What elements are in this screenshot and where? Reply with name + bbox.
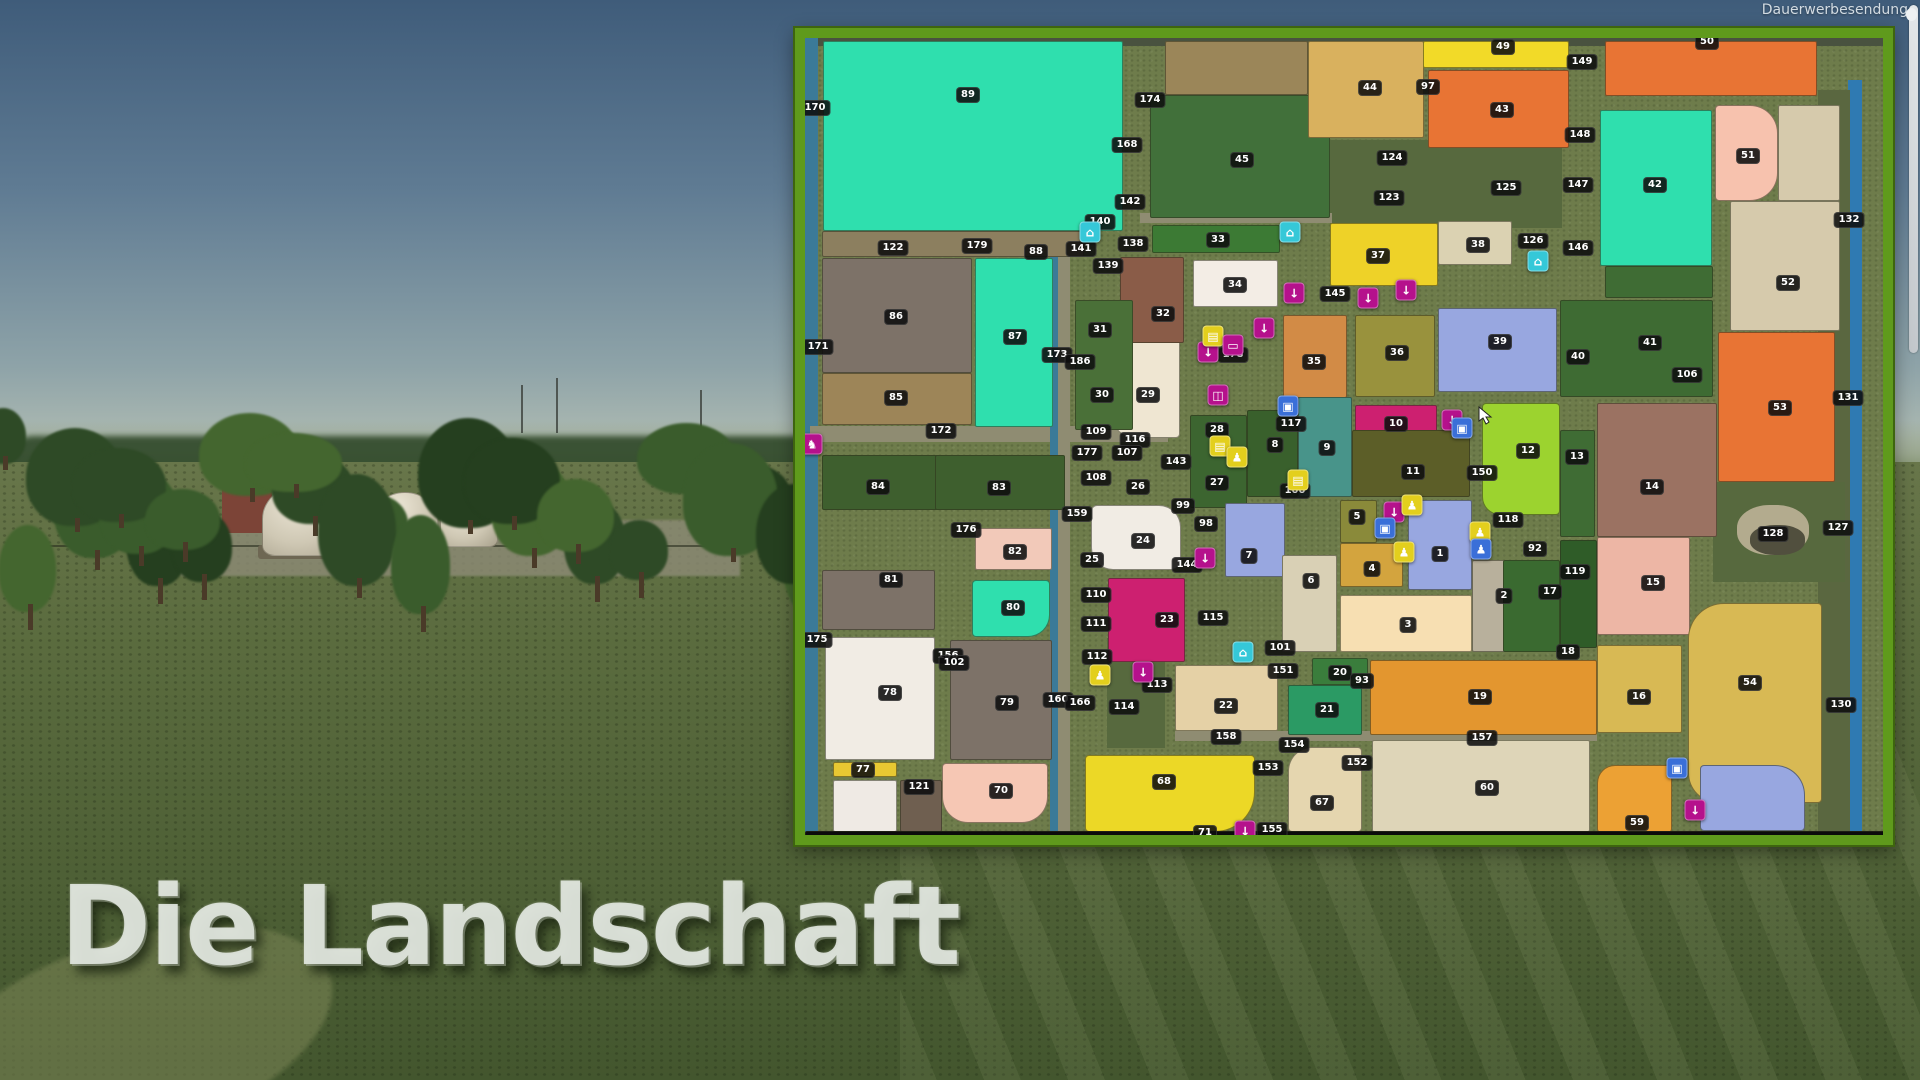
tree-trunk	[95, 550, 100, 570]
tree-trunk	[468, 520, 473, 534]
tree	[537, 479, 614, 552]
tree	[145, 489, 220, 550]
tree-trunk	[512, 516, 517, 530]
tree-trunk	[28, 604, 33, 630]
tree-trunk	[183, 542, 188, 562]
tree-trunk	[294, 484, 299, 498]
power-pole	[521, 385, 523, 433]
tree	[0, 525, 56, 612]
power-pole	[556, 378, 558, 433]
tree-trunk	[639, 572, 644, 598]
video-frame: Die Landschaft Dauerwerbesendung 1708917…	[0, 0, 1920, 1080]
scrollbar-knob[interactable]	[1906, 8, 1917, 21]
tree-trunk	[139, 546, 144, 566]
tree-trunk	[421, 606, 426, 632]
tree-trunk	[576, 544, 581, 564]
tree-trunk	[532, 548, 537, 568]
tree	[318, 474, 396, 586]
tree-trunk	[250, 488, 255, 502]
tree-trunk	[595, 576, 600, 602]
tree-trunk	[3, 456, 8, 470]
tree-trunk	[357, 578, 362, 598]
mouse-cursor	[1478, 406, 1496, 426]
tree-trunk	[202, 574, 207, 600]
tree	[610, 520, 668, 580]
page-title: Die Landschaft	[60, 862, 959, 990]
tree-trunk	[119, 514, 124, 528]
tree-trunk	[731, 548, 736, 562]
tree-trunk	[75, 518, 80, 532]
stream-ad-text: Dauerwerbesendung	[1762, 2, 1908, 18]
map-frame-border	[795, 28, 1893, 845]
scrollbar[interactable]	[1909, 5, 1918, 353]
tree-trunk	[158, 578, 163, 604]
tree	[391, 515, 450, 614]
